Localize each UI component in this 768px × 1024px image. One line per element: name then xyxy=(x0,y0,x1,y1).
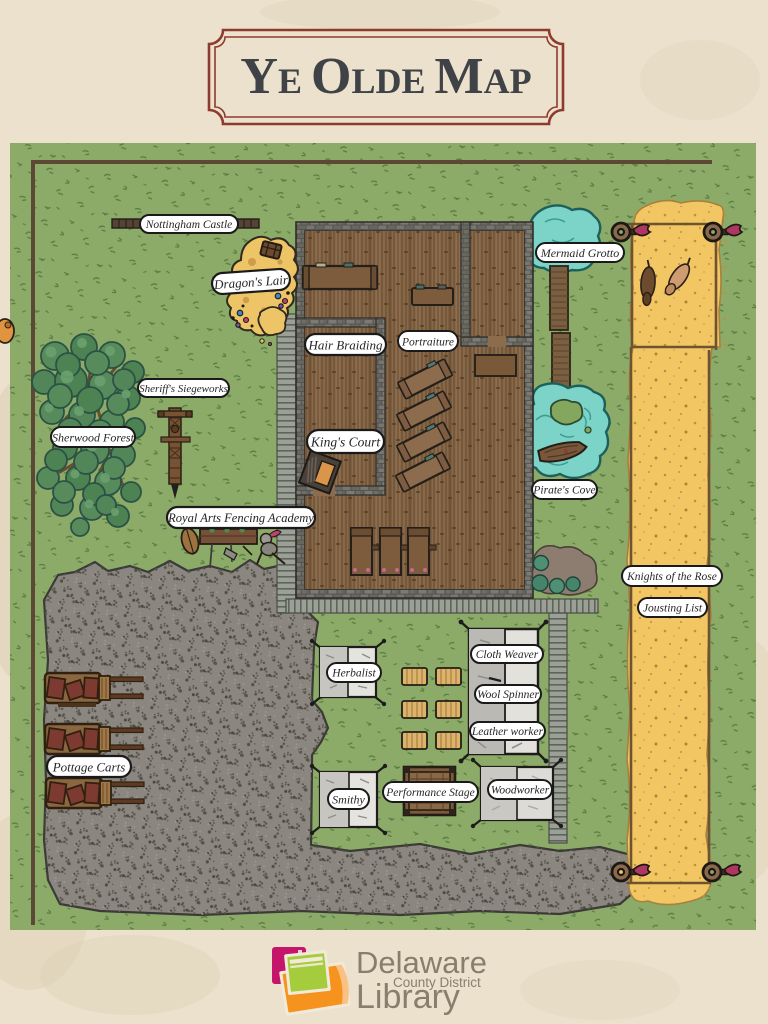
svg-text:Pottage Carts: Pottage Carts xyxy=(52,760,126,775)
svg-text:Cloth Weaver: Cloth Weaver xyxy=(476,649,539,661)
svg-text:Sherwood Forest: Sherwood Forest xyxy=(52,431,135,445)
svg-text:Wool Spinner: Wool Spinner xyxy=(477,689,539,701)
svg-text:Knights of the Rose: Knights of the Rose xyxy=(626,571,717,583)
svg-text:Portraiture: Portraiture xyxy=(401,337,454,349)
svg-text:Sheriff's Siegeworks: Sheriff's Siegeworks xyxy=(139,383,228,395)
svg-text:Library: Library xyxy=(356,978,460,1016)
svg-text:Mermaid Grotto: Mermaid Grotto xyxy=(540,246,620,260)
svg-text:Jousting List: Jousting List xyxy=(643,603,703,615)
svg-text:Herbalist: Herbalist xyxy=(331,668,376,680)
svg-text:Nottingham Castle: Nottingham Castle xyxy=(145,219,233,231)
svg-text:Royal Arts Fencing Academy: Royal Arts Fencing Academy xyxy=(167,511,314,525)
svg-text:Hair Braiding: Hair Braiding xyxy=(307,338,383,353)
svg-text:Pirate's Cove: Pirate's Cove xyxy=(532,485,595,497)
svg-text:Woodworker: Woodworker xyxy=(491,785,550,797)
svg-text:Leather worker: Leather worker xyxy=(471,726,544,738)
svg-text:King's Court: King's Court xyxy=(310,435,382,450)
svg-text:Performance Stage: Performance Stage xyxy=(385,787,474,799)
svg-text:Smithy: Smithy xyxy=(332,793,365,807)
